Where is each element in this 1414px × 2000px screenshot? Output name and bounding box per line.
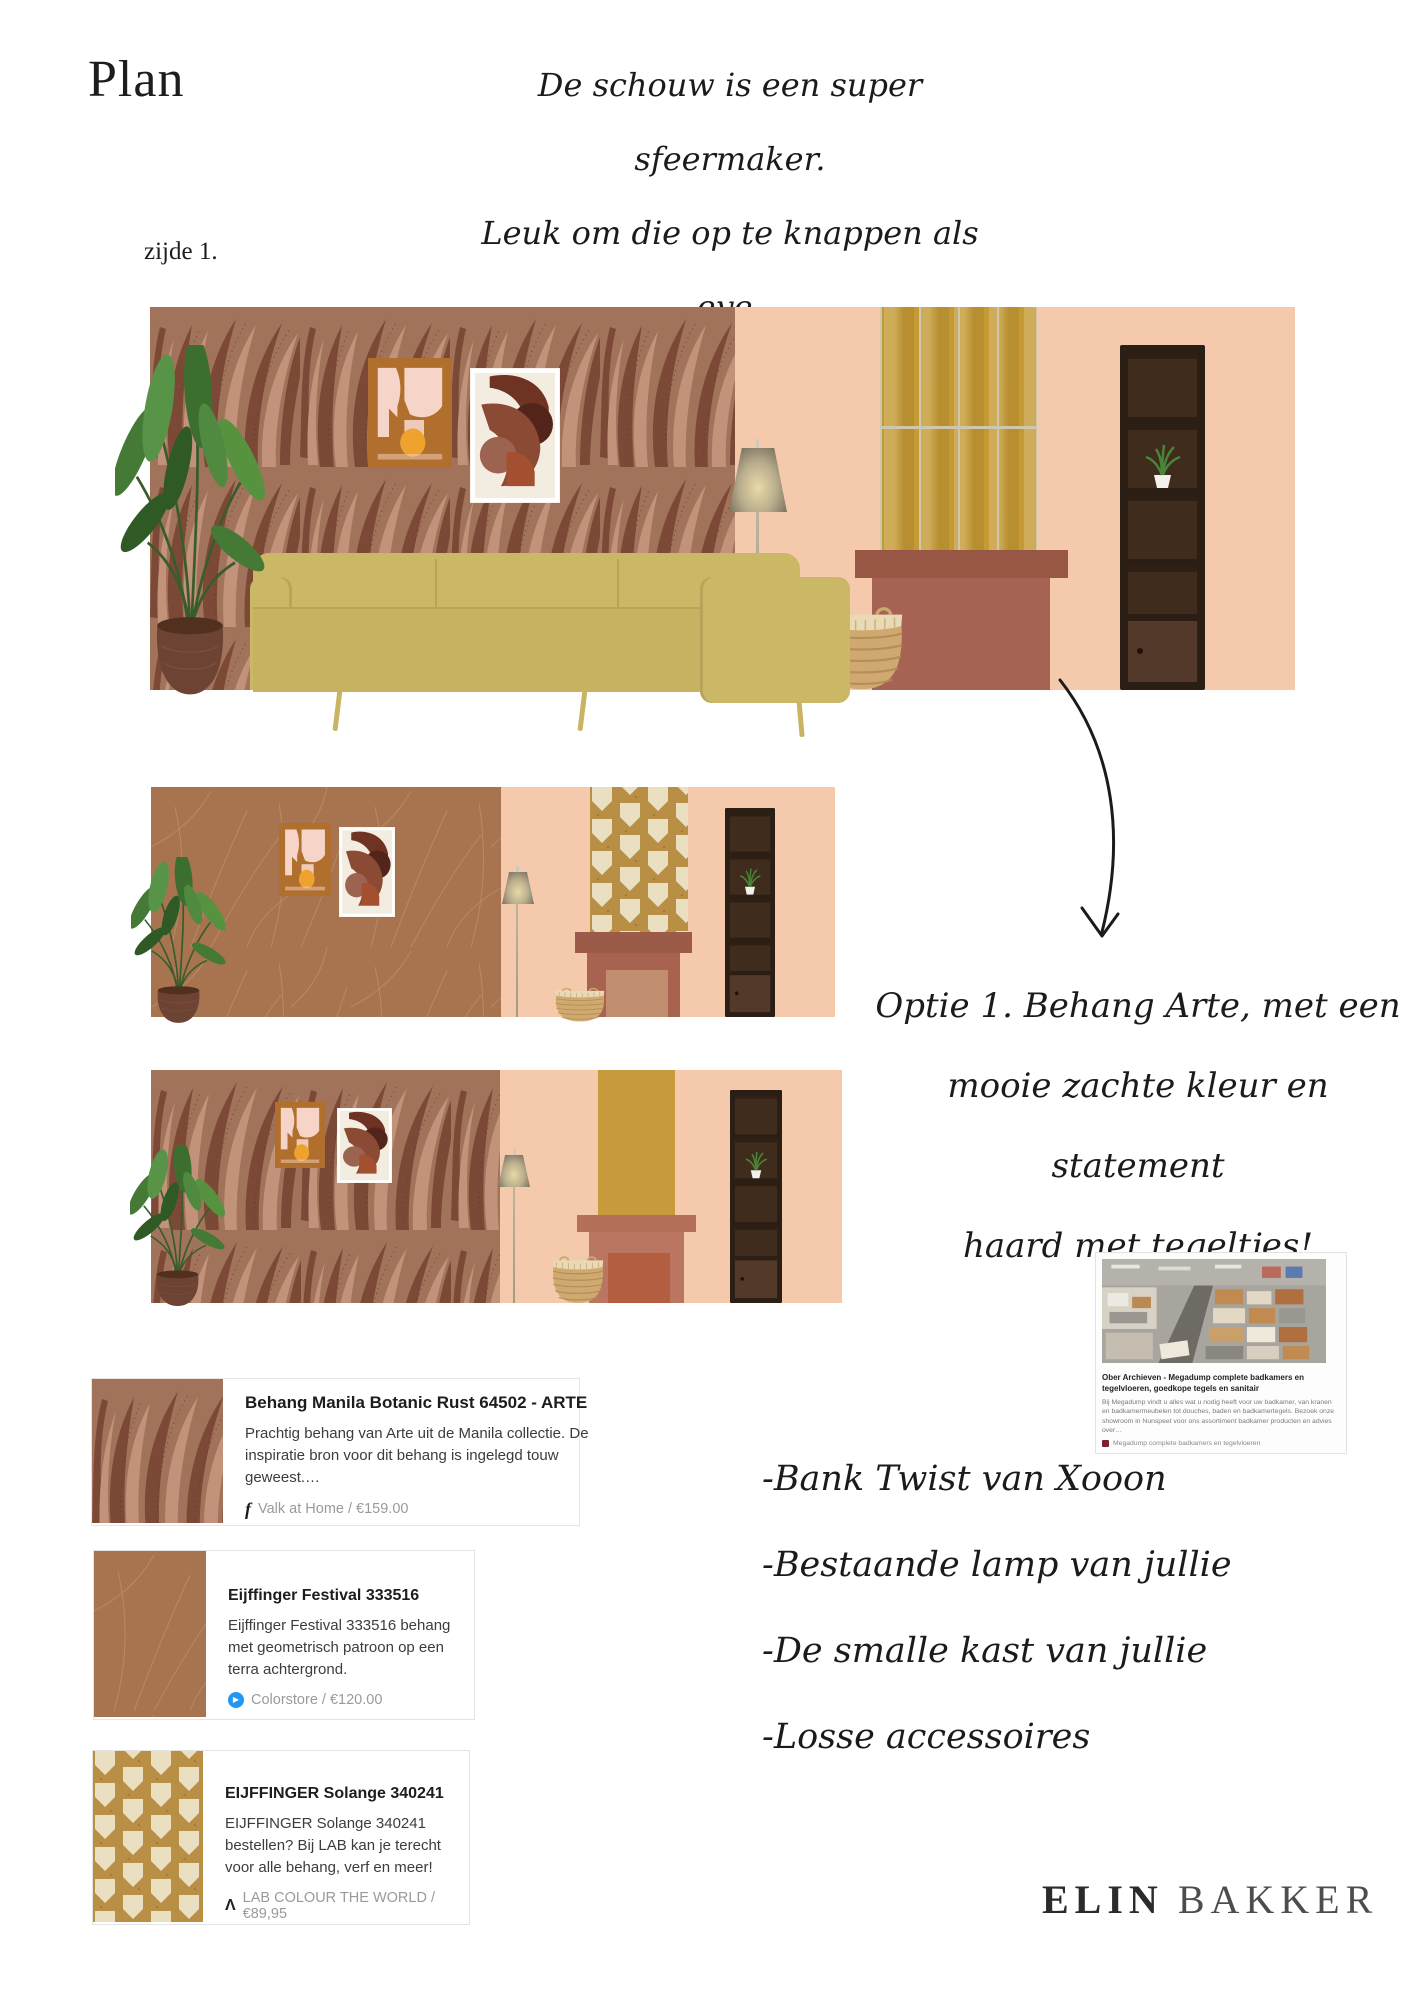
moodboard-option3 [151, 1070, 842, 1303]
plan-page: Plan De schouw is een super sfeermaker. … [0, 0, 1414, 2000]
lab-logo-icon: Λ [225, 1898, 236, 1914]
option-note-line: mooie zachte kleur en statement [858, 1046, 1414, 1206]
wallpaper-solange-pattern [590, 787, 688, 932]
facebook-icon: f [245, 1500, 251, 1518]
brand-first-name: ELIN [1042, 1876, 1164, 1923]
product-card-eijffinger-solange[interactable]: EIJFFINGER Solange 340241 EIJFFINGER Sol… [92, 1750, 470, 1925]
sofa-leg [796, 699, 804, 737]
painted-chimney-column [598, 1070, 675, 1215]
product-card-arte-manila[interactable]: Behang Manila Botanic Rust 64502 - ARTE … [91, 1378, 580, 1526]
artwork-abstract-brown [337, 1108, 392, 1183]
narrow-cabinet [1120, 345, 1205, 690]
plant-strelitzia [115, 345, 265, 703]
product-source: LAB COLOUR THE WORLD / €89,95 [243, 1890, 467, 1922]
warehouse-photo [1102, 1259, 1326, 1363]
artwork-abstract-brown [470, 368, 560, 503]
hand-drawn-arrow [1030, 670, 1160, 970]
wallpaper-solange-strip [590, 787, 688, 932]
moodboard-option2 [151, 787, 835, 1017]
product-thumbnail-solange [93, 1751, 203, 1922]
fireplace-mantel-cap [577, 1215, 696, 1232]
product-thumbnail-festival [94, 1551, 206, 1717]
option-note: Optie 1. Behang Arte, met een mooie zach… [858, 966, 1414, 1286]
list-item: -Losse accessoires [762, 1694, 1232, 1780]
artwork-abstract-pink [275, 1102, 325, 1168]
snippet-title: Ober Archieven - Megadump complete badka… [1102, 1373, 1340, 1395]
sofa-chaise [700, 577, 850, 703]
page-title: Plan [88, 50, 184, 109]
fireplace-tiles [880, 307, 1037, 552]
product-description: EIJFFINGER Solange 340241 bestellen? Bij… [225, 1813, 467, 1878]
floor-lamp-pole [513, 1187, 515, 1303]
woven-basket [551, 987, 609, 1023]
sourcing-list: -Bank Twist van Xooon -Bestaande lamp va… [762, 1436, 1232, 1780]
list-item: -Bank Twist van Xooon [762, 1436, 1232, 1522]
artwork-abstract-pink [279, 823, 331, 896]
product-description: Prachtig behang van Arte uit de Manila c… [245, 1423, 597, 1488]
product-title: Behang Manila Botanic Rust 64502 - ARTE [245, 1393, 597, 1413]
snippet-description: Bij Megadump vindt u alles wat u nodig h… [1102, 1398, 1340, 1436]
woven-basket [548, 1255, 608, 1305]
sofa-leg [577, 689, 587, 731]
product-title: Eijffinger Festival 333516 [228, 1587, 470, 1605]
lamp-finial [513, 1149, 516, 1155]
plant-strelitzia [130, 1145, 225, 1310]
product-description: Eijffinger Festival 333516 behang met ge… [228, 1615, 470, 1680]
artwork-abstract-pink [368, 358, 452, 468]
floor-lamp-pole [516, 904, 518, 1017]
product-source: Valk at Home / €159.00 [258, 1501, 408, 1517]
artwork-abstract-brown [339, 827, 395, 917]
fireplace-note-line: De schouw is een super sfeermaker. [480, 48, 980, 196]
moodboard-option1 [150, 307, 1295, 690]
product-source: Colorstore / €120.00 [251, 1692, 382, 1708]
product-thumbnail-manila [92, 1379, 223, 1523]
list-item: -Bestaande lamp van jullie [762, 1522, 1232, 1608]
lamp-finial [756, 439, 759, 448]
fireplace-mantel-cap [855, 550, 1068, 578]
fireplace-firebox [608, 1253, 670, 1303]
fireplace-firebox [606, 970, 668, 1017]
product-card-eijffinger-festival[interactable]: Eijffinger Festival 333516 Eijffinger Fe… [93, 1550, 475, 1720]
brand-logo: ELIN BAKKER [1042, 1876, 1378, 1923]
web-snippet-megadump[interactable]: Ober Archieven - Megadump complete badka… [1095, 1252, 1347, 1454]
side-label: zijde 1. [144, 238, 218, 266]
narrow-cabinet [730, 1090, 782, 1303]
narrow-cabinet [725, 808, 775, 1017]
lamp-finial [516, 866, 519, 872]
option-note-line: Optie 1. Behang Arte, met een [858, 966, 1414, 1046]
sofa-leg [332, 689, 342, 731]
colorstore-icon: ▶ [228, 1692, 244, 1708]
plant-strelitzia [131, 857, 226, 1027]
brand-last-name: BAKKER [1178, 1876, 1378, 1923]
list-item: -De smalle kast van jullie [762, 1608, 1232, 1694]
fireplace-mantel-cap [575, 932, 692, 953]
product-title: EIJFFINGER Solange 340241 [225, 1785, 467, 1803]
